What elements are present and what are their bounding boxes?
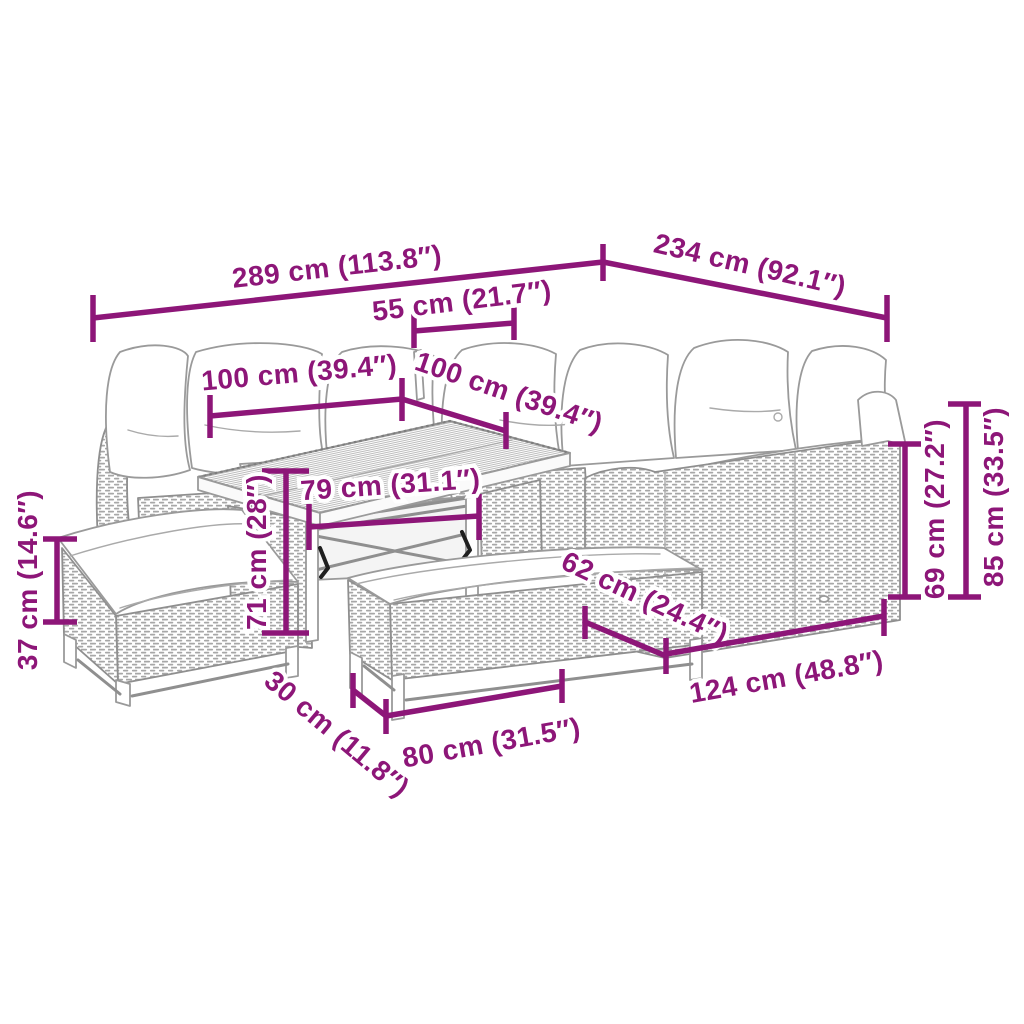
armrest-cushion xyxy=(858,392,906,446)
dimension-diagram: 289 cm (113.8″) 234 cm (92.1″) 55 cm (21… xyxy=(0,0,1024,1024)
dimension-line xyxy=(353,690,386,716)
back-cushion xyxy=(106,345,190,477)
vent-hole xyxy=(820,596,829,602)
dimension-label-124: 124 cm (48.8″) xyxy=(687,644,886,709)
dimension-label-80: 80 cm (31.5″) xyxy=(400,712,583,774)
dimension-label-37: 37 cm (14.6″) xyxy=(12,490,43,670)
dimension-total-height: 85 cm (33.5″) xyxy=(948,404,1009,597)
left-bench-leg xyxy=(64,634,76,668)
dimension-overall-depth: 234 cm (92.1″) xyxy=(603,228,887,342)
dimension-label-85: 85 cm (33.5″) xyxy=(978,407,1009,587)
dimension-label-71: 71 cm (28″) xyxy=(241,474,272,630)
dimension-label-69: 69 cm (27.2″) xyxy=(919,419,950,599)
back-cushion xyxy=(675,340,796,458)
dimension-bench-width: 80 cm (31.5″) xyxy=(386,669,583,774)
dimension-line xyxy=(414,323,514,331)
center-bench-leg xyxy=(690,638,702,680)
